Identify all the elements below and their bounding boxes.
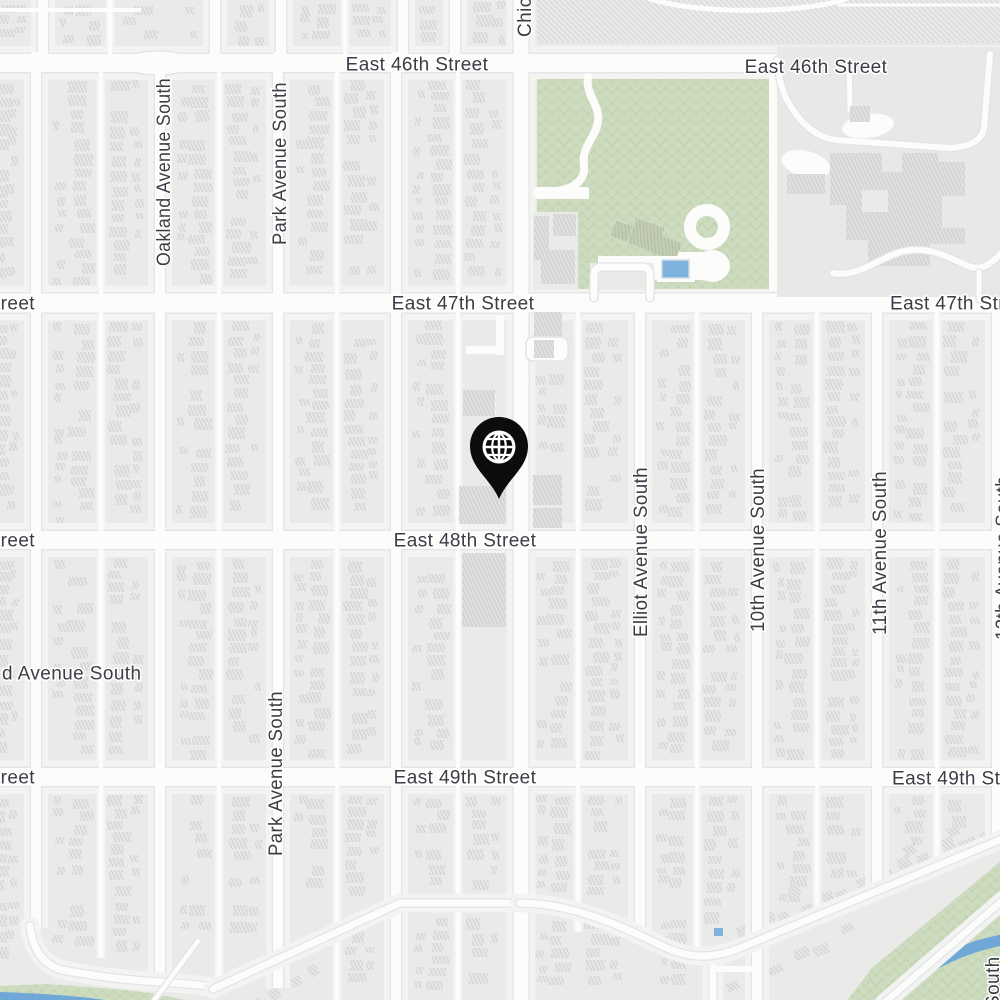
svg-text:East 46th Street: East 46th Street: [346, 55, 489, 76]
svg-text:Park Avenue South: Park Avenue South: [266, 691, 287, 856]
svg-text:East 48th Street: East 48th Street: [0, 531, 35, 552]
svg-text:East 47th Street: East 47th Street: [890, 294, 1000, 315]
svg-text:12th Avenue South: 12th Avenue South: [993, 476, 1000, 640]
svg-text:East 49th Street: East 49th Street: [0, 768, 35, 789]
svg-text:East 47th Street: East 47th Street: [392, 294, 535, 315]
svg-text:11th Avenue South: 11th Avenue South: [870, 471, 891, 635]
svg-text:Park Avenue South: Park Avenue South: [270, 82, 291, 245]
svg-text:East 49th Street: East 49th Street: [394, 768, 537, 789]
svg-text:Oakland Avenue South: Oakland Avenue South: [154, 78, 175, 266]
svg-text:East 49th Street: East 49th Street: [892, 769, 1000, 790]
svg-text:South: South: [983, 956, 1000, 1000]
svg-text:d Avenue South: d Avenue South: [2, 664, 141, 685]
svg-text:East 47th Street: East 47th Street: [0, 294, 35, 315]
svg-text:10th Avenue South: 10th Avenue South: [748, 468, 769, 632]
svg-text:Elliot Avenue South: Elliot Avenue South: [631, 467, 652, 637]
svg-text:East 46th Street: East 46th Street: [745, 57, 888, 78]
svg-text:East 48th Street: East 48th Street: [394, 531, 537, 552]
svg-text:Chicago Avenue: Chicago Avenue: [515, 0, 536, 37]
